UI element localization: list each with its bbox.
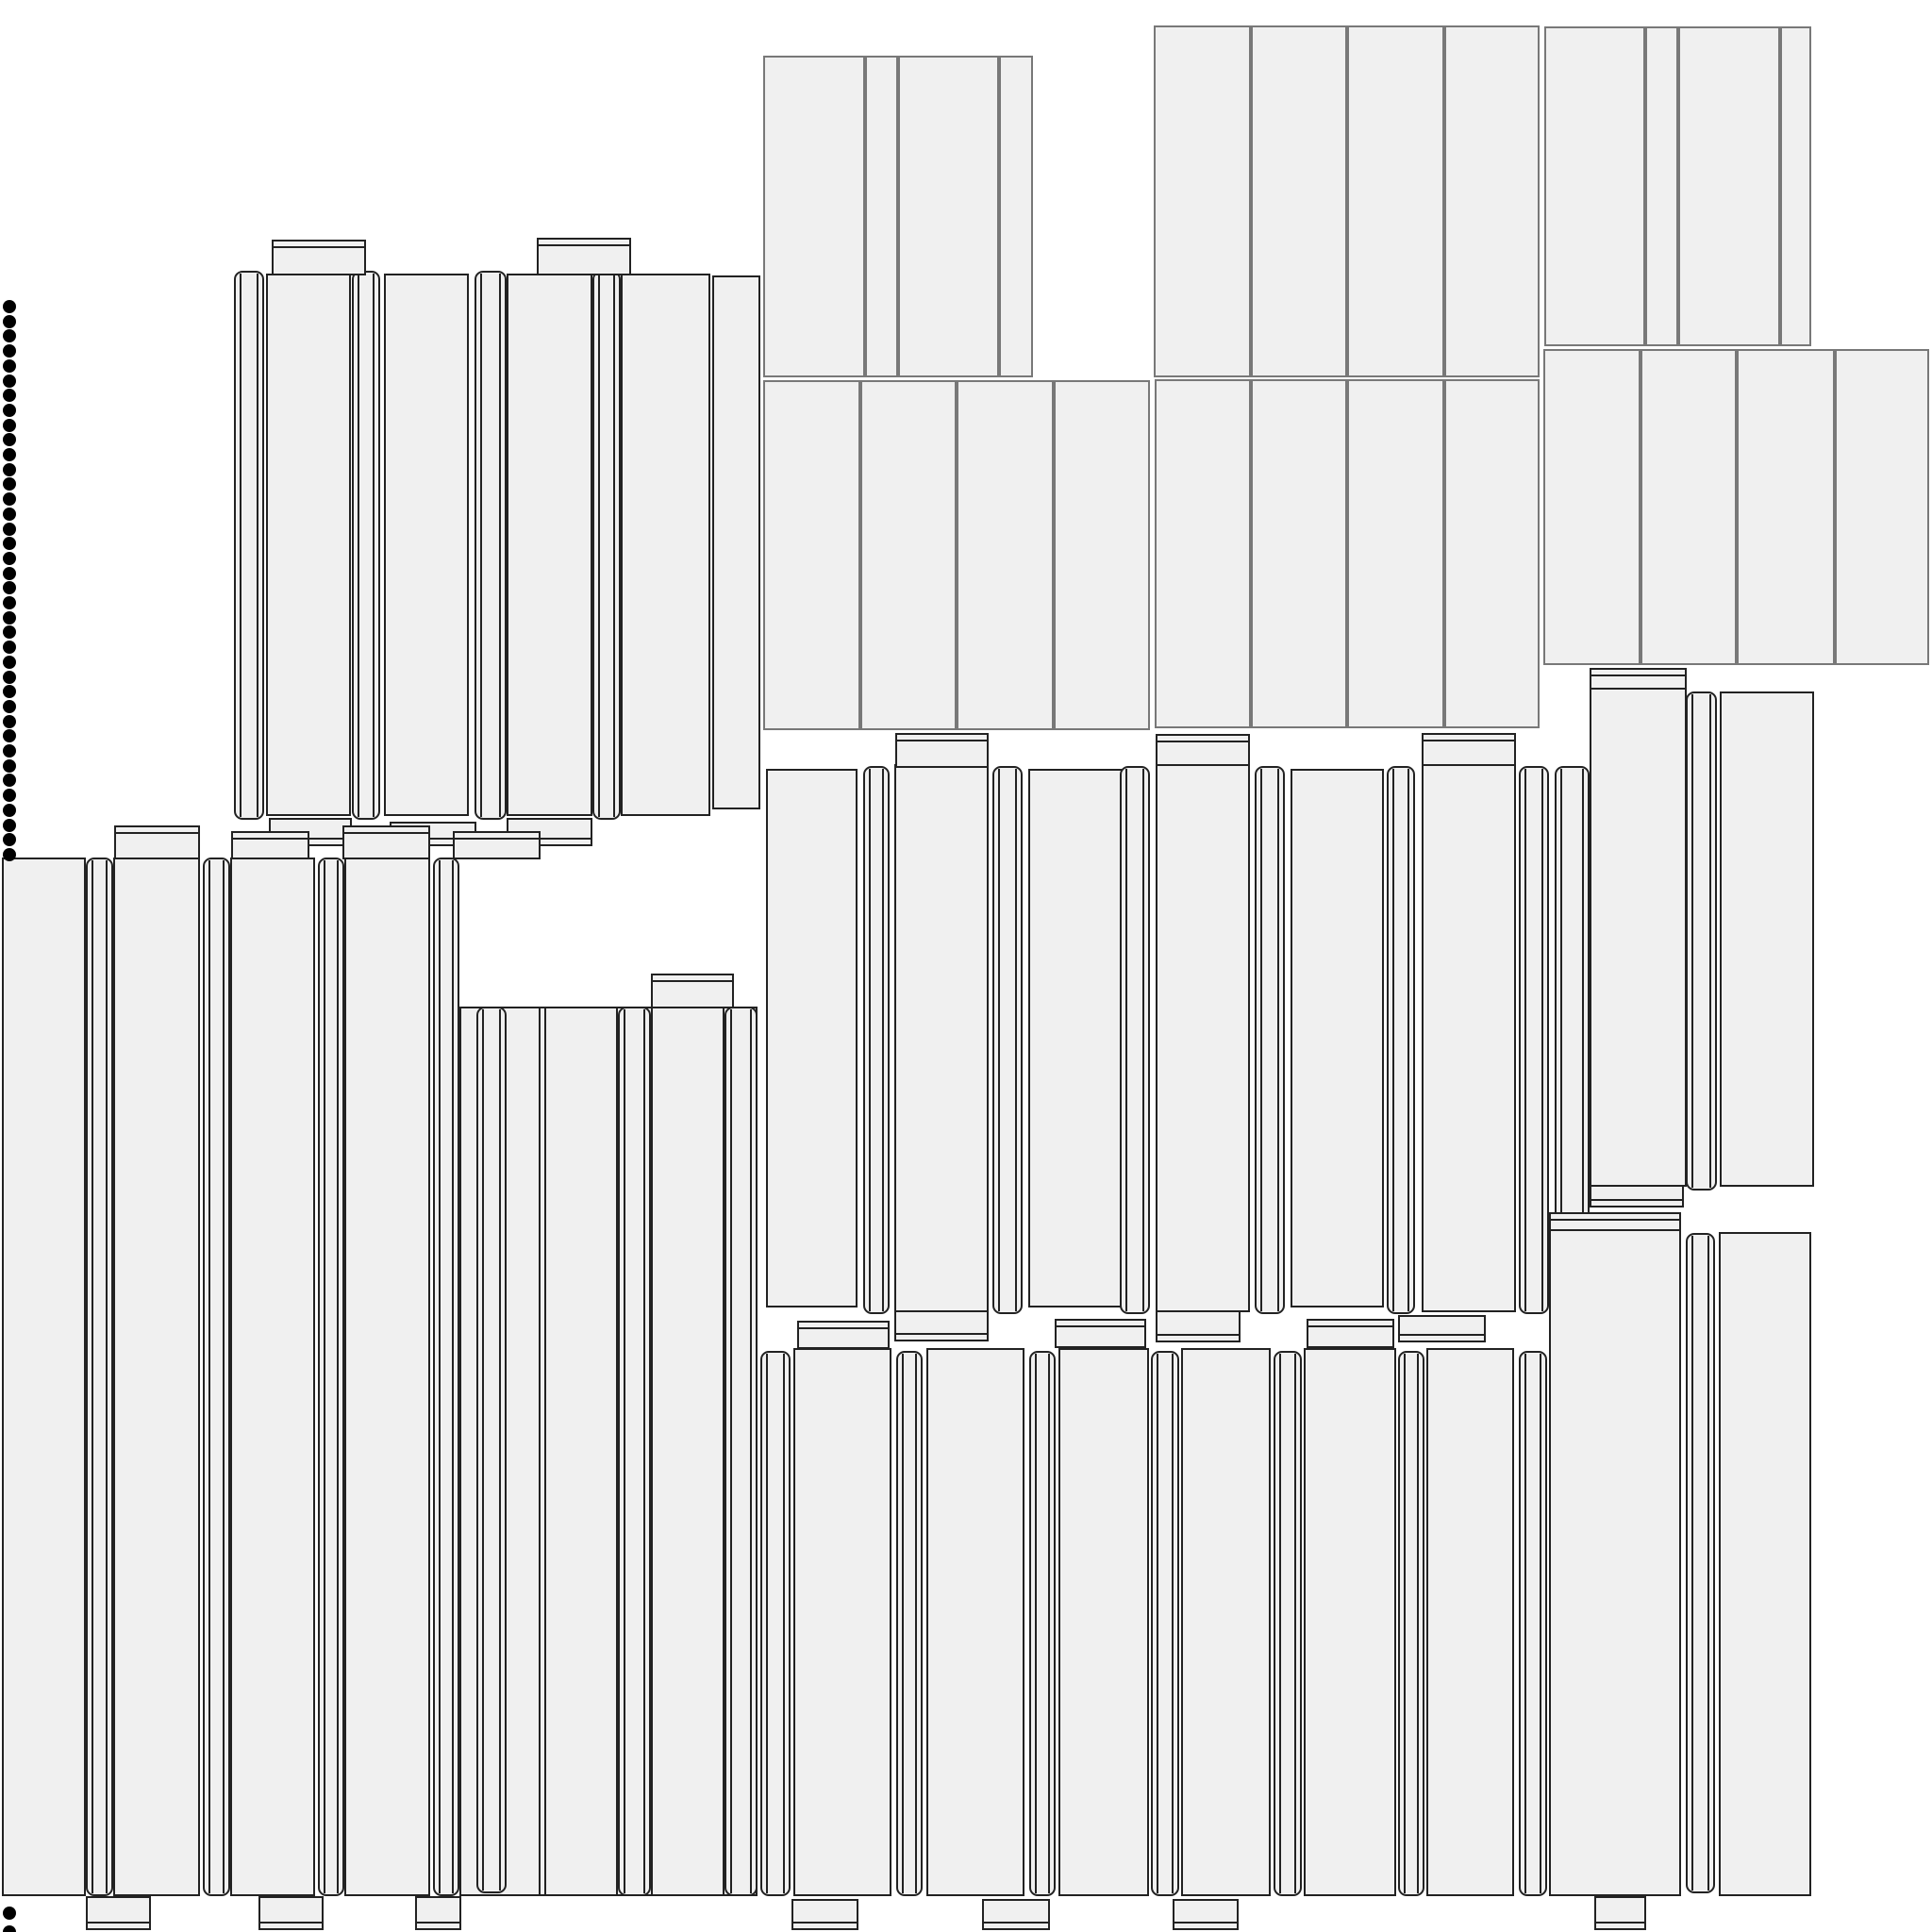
dot xyxy=(3,596,16,609)
botmid-bar xyxy=(618,1007,651,1896)
dot xyxy=(3,671,16,684)
botleft-bar xyxy=(318,858,344,1896)
midband-tab xyxy=(1156,734,1250,766)
botmid-bar xyxy=(476,1007,507,1893)
botmid-slab xyxy=(651,1007,724,1896)
dot xyxy=(3,448,16,461)
botmid-bar xyxy=(724,1007,758,1896)
dot xyxy=(3,729,16,742)
midleft-tab xyxy=(537,238,631,275)
midband-slab-tall xyxy=(1590,668,1687,1187)
botband-tab xyxy=(1549,1212,1681,1231)
dot xyxy=(3,641,16,654)
midband-slab xyxy=(1720,691,1814,1187)
dot xyxy=(3,774,16,787)
botleft-slab xyxy=(230,858,315,1896)
row2-col xyxy=(957,380,1054,730)
row2-right-col xyxy=(1641,349,1737,665)
midband-tab xyxy=(1156,1310,1241,1342)
top-mid-col xyxy=(999,56,1033,377)
dot xyxy=(3,715,16,728)
top-mid-col xyxy=(763,56,865,377)
botband-slab xyxy=(1719,1232,1811,1896)
top-right-b-col xyxy=(1678,26,1780,346)
botleft-tab xyxy=(231,831,309,859)
row2-right-col xyxy=(1543,349,1641,665)
dot xyxy=(3,611,16,625)
dot xyxy=(3,477,16,491)
dot xyxy=(3,656,16,669)
canvas xyxy=(0,0,1932,1932)
botleft-tab xyxy=(453,831,541,859)
midband-tab xyxy=(1422,733,1516,766)
botleft-tab xyxy=(415,1896,461,1930)
dot xyxy=(3,685,16,698)
midband-bar xyxy=(992,766,1023,1314)
dot xyxy=(3,537,16,550)
botband-slab xyxy=(793,1348,891,1896)
dot xyxy=(3,433,16,446)
top-right-a-col xyxy=(1444,25,1540,377)
dot xyxy=(3,744,16,758)
top-right-b-col xyxy=(1544,26,1645,346)
midleft-slab xyxy=(621,274,710,816)
botleft-tab xyxy=(86,1896,151,1930)
dot xyxy=(3,359,16,373)
dot xyxy=(3,329,16,342)
interband-tab xyxy=(1398,1315,1486,1342)
midband-slab xyxy=(1291,769,1384,1307)
midleft-bar xyxy=(352,271,380,820)
midband-bar xyxy=(1255,766,1285,1314)
dot xyxy=(3,552,16,565)
botband-tab xyxy=(791,1899,858,1930)
midleft-slab xyxy=(266,274,351,816)
top-right-b-col xyxy=(1645,26,1678,346)
botband-tab xyxy=(982,1899,1050,1930)
midleft-bar xyxy=(234,271,264,820)
midband-bar xyxy=(1120,766,1150,1314)
botband-bar xyxy=(1519,1351,1547,1896)
dot xyxy=(3,375,16,388)
row2-right-col xyxy=(1737,349,1835,665)
interband-tab xyxy=(1055,1319,1146,1348)
botband-tab xyxy=(1173,1899,1239,1930)
botband-bar xyxy=(1029,1351,1056,1896)
midband-slab xyxy=(894,764,989,1312)
botband-bar xyxy=(896,1351,923,1896)
dot xyxy=(3,789,16,802)
midband-slab xyxy=(1422,764,1516,1312)
botband-slab-tall xyxy=(1549,1228,1681,1896)
dot xyxy=(3,804,16,817)
botband-bar xyxy=(1686,1233,1715,1893)
dot xyxy=(3,463,16,476)
midband-tab xyxy=(1590,668,1687,690)
midleft-slab xyxy=(384,274,469,816)
row2-col xyxy=(763,380,860,730)
midband-bar xyxy=(1387,766,1415,1314)
botleft-slab xyxy=(2,858,86,1896)
interband-tab xyxy=(1307,1319,1394,1348)
row2-col xyxy=(1347,379,1444,728)
dot xyxy=(3,833,16,846)
botband-bar xyxy=(760,1351,791,1896)
botband-slab xyxy=(1426,1348,1514,1896)
dot xyxy=(3,848,16,861)
midband-tab xyxy=(894,1310,989,1341)
botband-slab xyxy=(926,1348,1024,1896)
botband-slab xyxy=(1304,1348,1396,1896)
dot xyxy=(3,700,16,713)
top-mid-col xyxy=(865,56,898,377)
midband-slab xyxy=(1156,764,1250,1312)
row2-col xyxy=(1054,380,1150,730)
midband-bar xyxy=(1519,766,1549,1314)
dot xyxy=(3,404,16,417)
midband-tab xyxy=(1590,1185,1684,1207)
botleft-slab xyxy=(344,858,430,1896)
dot xyxy=(3,1925,16,1932)
botmid-slab xyxy=(544,1007,618,1896)
top-right-a-col xyxy=(1154,25,1251,377)
botleft-tab xyxy=(258,1896,324,1930)
midband-bar xyxy=(1686,691,1717,1191)
dot xyxy=(3,508,16,521)
botband-tab xyxy=(1594,1896,1646,1930)
top-right-a-col xyxy=(1347,25,1444,377)
botband-slab xyxy=(1058,1348,1149,1896)
botband-bar xyxy=(1274,1351,1302,1896)
botmid-tab xyxy=(651,974,734,1008)
row2-col xyxy=(1444,379,1540,728)
dot xyxy=(3,819,16,832)
row2-right-col xyxy=(1835,349,1929,665)
dot xyxy=(3,567,16,580)
botband-bar xyxy=(1398,1351,1424,1896)
midleft-bar xyxy=(592,271,621,820)
dot xyxy=(3,759,16,773)
top-mid-col xyxy=(898,56,999,377)
botband-bar xyxy=(1151,1351,1179,1896)
botleft-tab xyxy=(114,825,200,859)
dot xyxy=(3,315,16,328)
dot xyxy=(3,625,16,639)
dot xyxy=(3,581,16,594)
midleft-bar xyxy=(475,271,507,820)
interband-tab xyxy=(797,1321,890,1349)
midband-slab xyxy=(1028,769,1123,1307)
row2-col xyxy=(1155,379,1251,728)
dot xyxy=(3,492,16,506)
midleft-slab xyxy=(712,275,760,809)
row2-col xyxy=(1251,379,1347,728)
top-right-a-col xyxy=(1251,25,1347,377)
dot xyxy=(3,389,16,402)
top-right-b-col xyxy=(1780,26,1811,346)
midleft-slab xyxy=(507,274,592,816)
botleft-slab xyxy=(113,858,200,1896)
row2-col xyxy=(860,380,957,730)
botleft-bar xyxy=(203,858,230,1896)
midleft-tab xyxy=(272,240,366,275)
dot xyxy=(3,419,16,432)
midband-slab xyxy=(766,769,858,1307)
botleft-bar xyxy=(86,858,113,1896)
dot xyxy=(3,523,16,536)
botband-slab xyxy=(1181,1348,1271,1896)
botleft-tab xyxy=(342,825,430,859)
midband-bar xyxy=(863,766,890,1314)
dot xyxy=(3,1907,16,1920)
dot xyxy=(3,344,16,358)
dot xyxy=(3,300,16,313)
midband-tab xyxy=(895,733,989,768)
botleft-bar xyxy=(433,858,459,1896)
